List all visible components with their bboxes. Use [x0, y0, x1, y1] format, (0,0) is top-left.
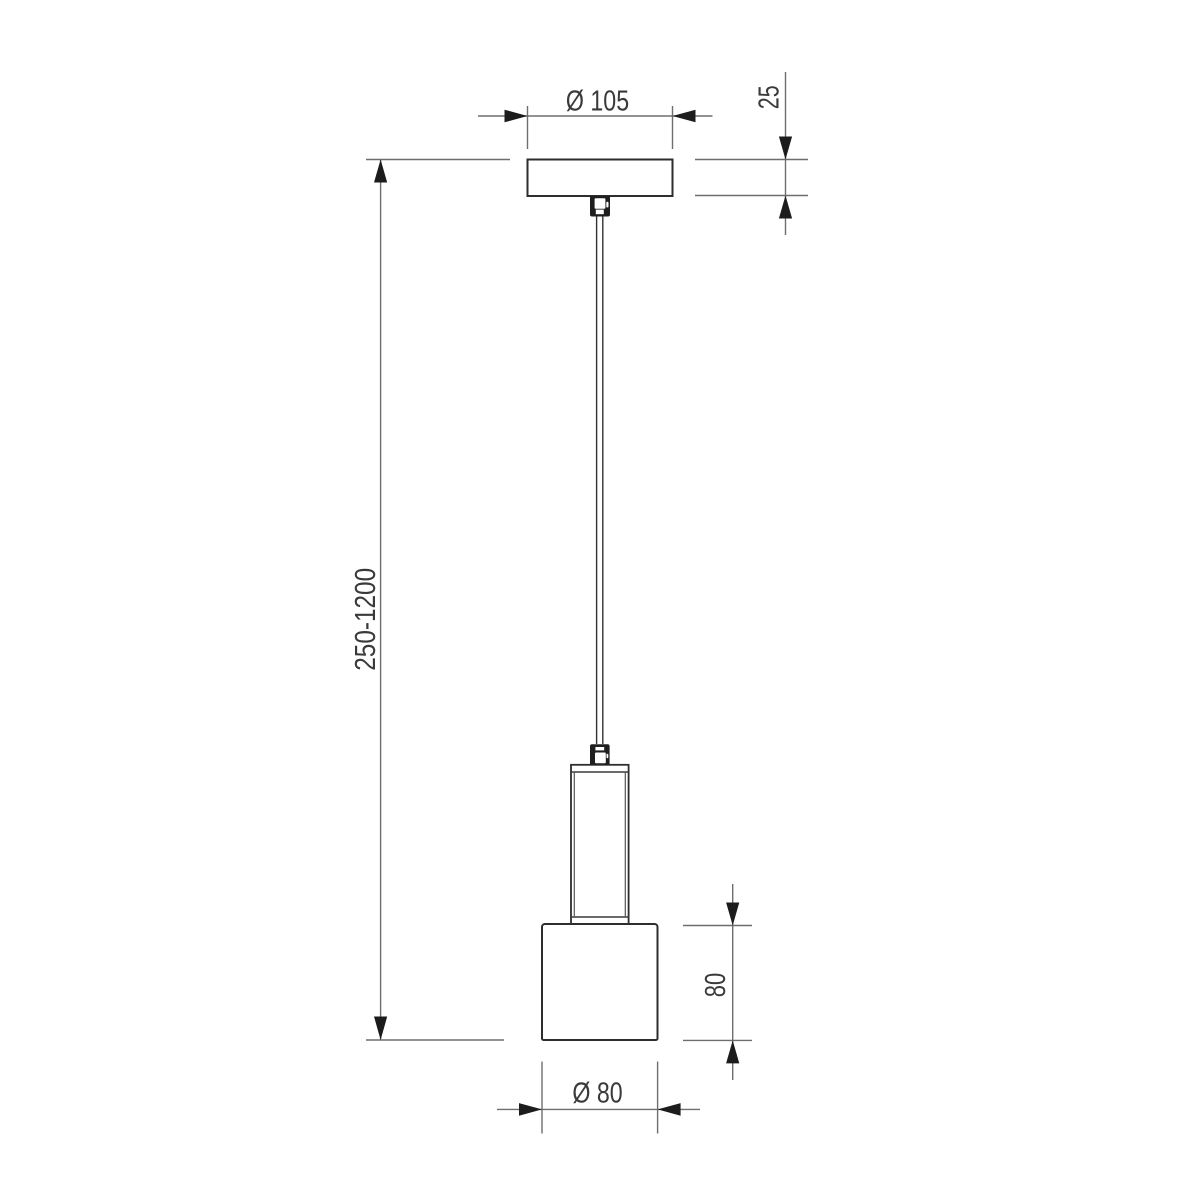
- svg-text:80: 80: [700, 973, 732, 998]
- svg-text:Ø 80: Ø 80: [572, 1076, 622, 1109]
- svg-text:25: 25: [753, 85, 785, 109]
- svg-text:Ø 105: Ø 105: [566, 84, 629, 117]
- svg-text:250-1200: 250-1200: [349, 568, 381, 671]
